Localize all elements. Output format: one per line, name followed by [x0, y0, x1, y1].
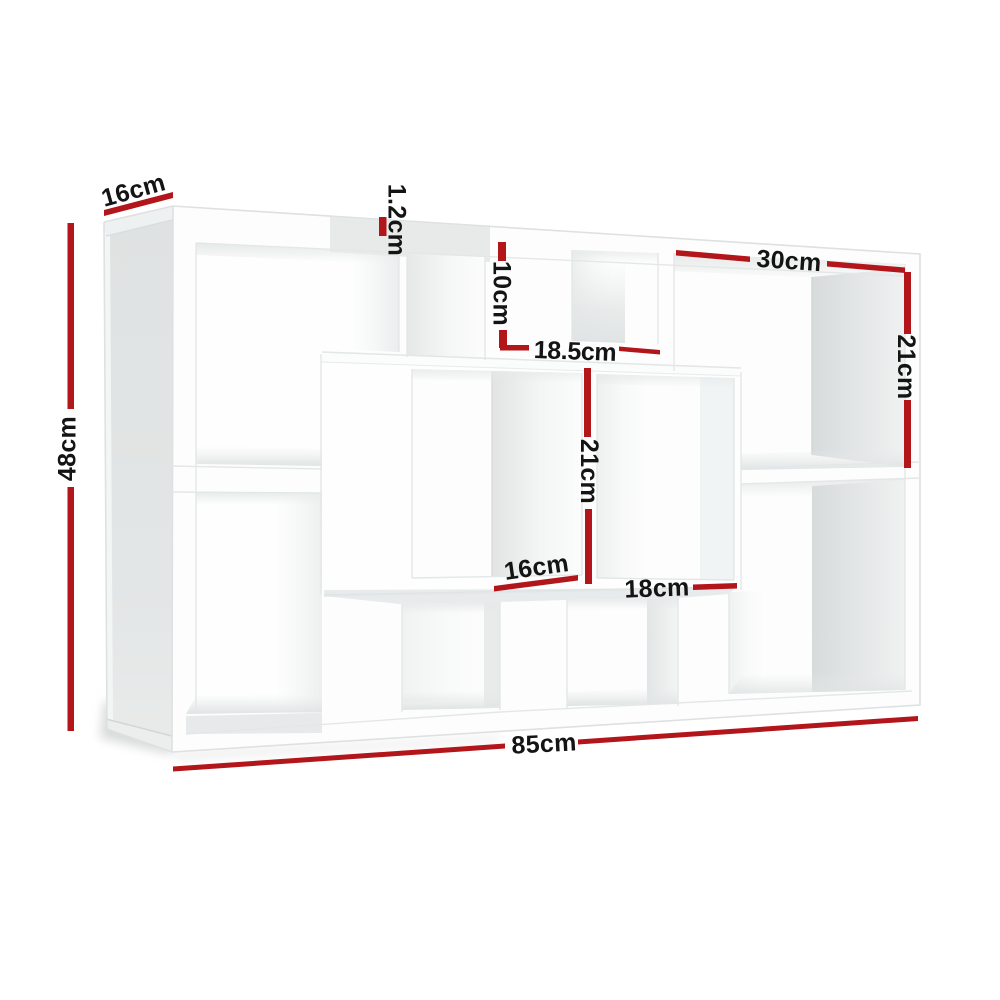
svg-text:18.5cm: 18.5cm	[533, 336, 616, 367]
svg-text:10cm: 10cm	[488, 261, 516, 326]
svg-text:85cm: 85cm	[511, 728, 578, 759]
svg-text:18cm: 18cm	[624, 573, 690, 603]
svg-text:48cm: 48cm	[54, 416, 82, 481]
svg-text:30cm: 30cm	[756, 245, 823, 277]
svg-text:1.2cm: 1.2cm	[383, 184, 411, 256]
svg-text:21cm: 21cm	[892, 334, 920, 399]
svg-text:21cm: 21cm	[575, 439, 603, 504]
